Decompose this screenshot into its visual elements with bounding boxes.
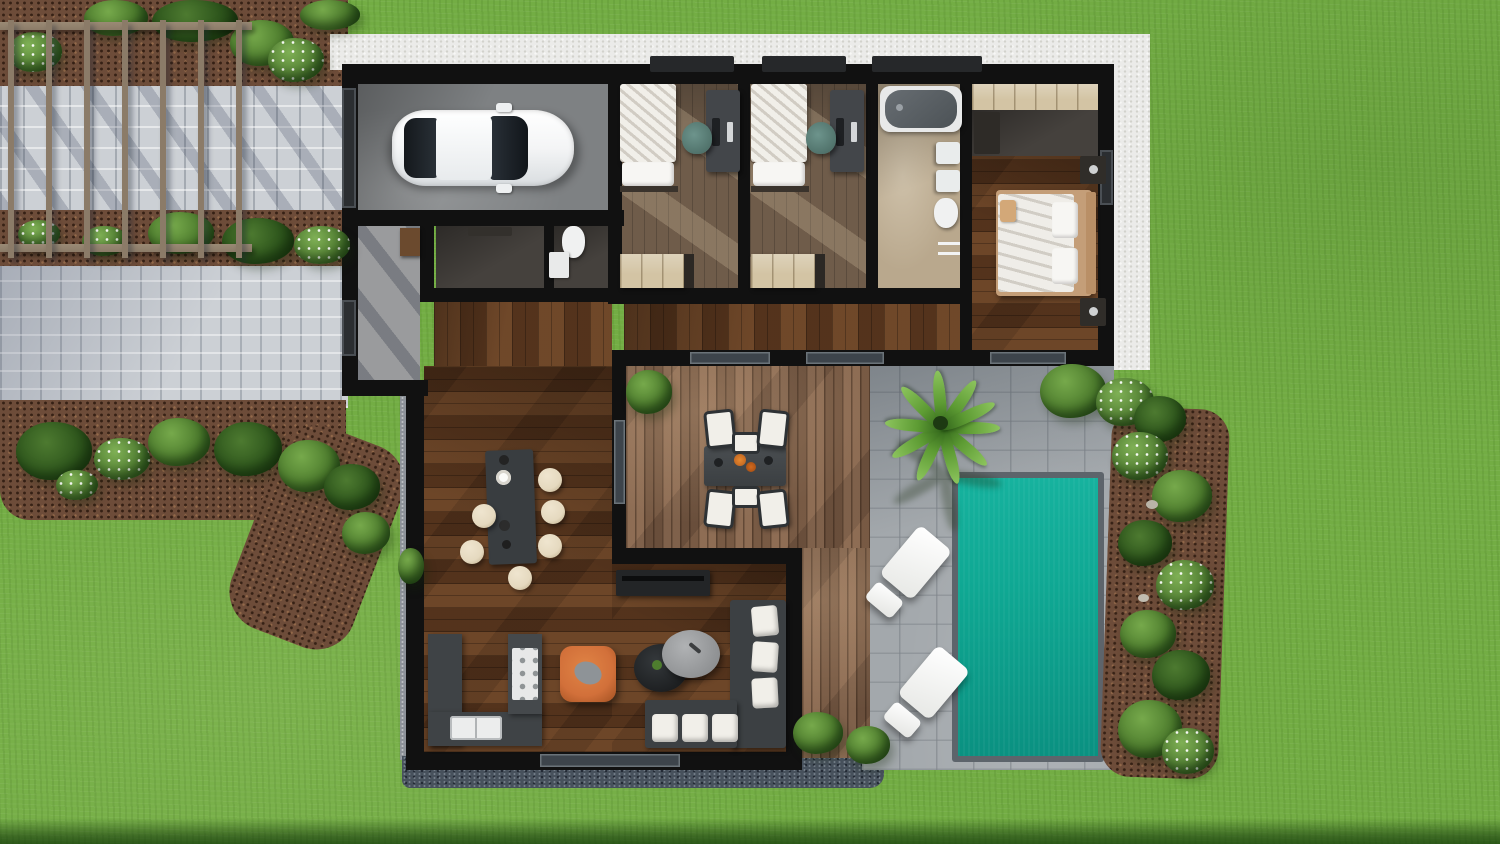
bar-stool-4 <box>472 504 496 528</box>
sofa-pillow-1 <box>751 605 780 637</box>
bed-2-pillow <box>753 162 805 186</box>
master-throw-pillow <box>1000 200 1016 222</box>
garden-stone <box>1146 500 1158 509</box>
bed-1-pillow <box>622 162 674 186</box>
sofa-pillow-3 <box>751 677 779 708</box>
entry-cabinet <box>400 228 420 256</box>
desk-1-monitor <box>712 118 720 146</box>
desk-2-keyboard <box>851 122 857 142</box>
living-sliding-door <box>540 754 680 767</box>
sofa-pillow-2 <box>751 641 779 673</box>
car-windshield <box>490 116 528 180</box>
desk-chair-2 <box>806 122 836 154</box>
nightstand-lamp-1 <box>1089 165 1098 174</box>
bar-stool-1 <box>538 468 562 492</box>
table-plate-1 <box>714 458 723 467</box>
island-bowl-3 <box>502 540 511 549</box>
wall-garage-south <box>342 210 624 226</box>
wall-bed2-bath <box>866 80 878 304</box>
tv-console <box>616 570 710 596</box>
shower-glass-1 <box>938 242 960 245</box>
pergola-post <box>8 20 14 258</box>
vanity-sink-1 <box>936 142 960 164</box>
car-rear-glass <box>404 118 438 178</box>
sofa-cushion-2 <box>682 714 708 742</box>
wall-utility-south <box>424 288 624 302</box>
master-wardrobe <box>972 84 1098 110</box>
table-flowers-1 <box>734 454 746 466</box>
coffee-table-gray <box>662 630 720 678</box>
shower-glass-2 <box>938 252 960 255</box>
wall-bedrooms-south <box>612 288 960 304</box>
living-deck-door <box>614 420 625 504</box>
island-plate <box>496 470 511 485</box>
pergola-post <box>122 20 128 258</box>
island-bowl-2 <box>499 520 510 531</box>
pergola-post <box>84 20 90 258</box>
garden-stone <box>1138 594 1149 602</box>
closet-unit <box>974 112 1000 154</box>
wardrobe-2-side <box>815 254 825 288</box>
entry-window <box>342 300 356 356</box>
sofa-cushion-1 <box>652 714 678 742</box>
bar-stool-5 <box>460 540 484 564</box>
tv <box>622 576 704 581</box>
kitchen-sink-divider <box>475 718 477 738</box>
bar-stool-6 <box>508 566 532 590</box>
paver-walkway <box>0 86 348 212</box>
wc-cabinet <box>549 252 569 278</box>
wardrobe-1 <box>620 254 684 288</box>
stove <box>512 648 538 700</box>
nightstand-lamp-2 <box>1089 307 1098 316</box>
bathroom-toilet <box>934 198 958 228</box>
table-flowers-2 <box>746 462 756 472</box>
bedroom-2-window-lintel <box>762 56 846 72</box>
master-headboard <box>1086 192 1096 294</box>
master-pillow-2 <box>1052 248 1078 284</box>
bed-2-duvet <box>751 84 807 162</box>
corridor-patio-door <box>806 352 884 364</box>
bathroom-window-lintel <box>872 56 982 72</box>
palm-trunk <box>933 416 948 430</box>
desk-1-keyboard <box>727 122 733 142</box>
car-mirror-top <box>496 103 512 112</box>
hallway-floor <box>434 302 612 366</box>
dining-chair-3 <box>756 409 790 450</box>
sofa-cushion-3 <box>712 714 738 742</box>
desk-chair-1 <box>682 122 712 154</box>
master-patio-door <box>990 352 1066 364</box>
garage-door <box>342 88 356 208</box>
corridor-deck-door <box>690 352 770 364</box>
wall-entry-east <box>420 210 434 302</box>
bathtub-drain <box>896 104 903 111</box>
swimming-pool <box>958 478 1098 756</box>
pergola-post <box>46 20 52 258</box>
car-roof <box>436 116 492 180</box>
vanity-sink-2 <box>936 170 960 192</box>
floor-plan-render <box>0 0 1500 844</box>
coffee-table-plant <box>652 660 662 670</box>
pergola-post <box>198 20 204 258</box>
table-plate-2 <box>764 456 773 465</box>
island-bowl-1 <box>499 455 509 465</box>
corridor-floor <box>624 304 960 350</box>
desk-2-monitor <box>836 118 844 146</box>
bed-1-frame <box>620 186 678 192</box>
pergola-post <box>236 20 242 258</box>
car-mirror-bottom <box>496 184 512 193</box>
bar-stool-2 <box>541 500 565 524</box>
palm-tree <box>878 372 1010 482</box>
bedroom-1-window-lintel <box>650 56 734 72</box>
wall-living-north <box>612 548 802 564</box>
wardrobe-1-side <box>684 254 694 288</box>
bed-1-duvet <box>620 84 676 162</box>
pergola-post <box>160 20 166 258</box>
master-pillow-1 <box>1052 202 1078 238</box>
wardrobe-2 <box>751 254 815 288</box>
dining-chair-6 <box>756 489 790 530</box>
bed-2-frame <box>751 186 809 192</box>
bar-stool-3 <box>538 534 562 558</box>
paver-court <box>0 266 348 408</box>
storage-shelf <box>468 227 512 236</box>
lawn-shadow-edge <box>0 818 1500 844</box>
